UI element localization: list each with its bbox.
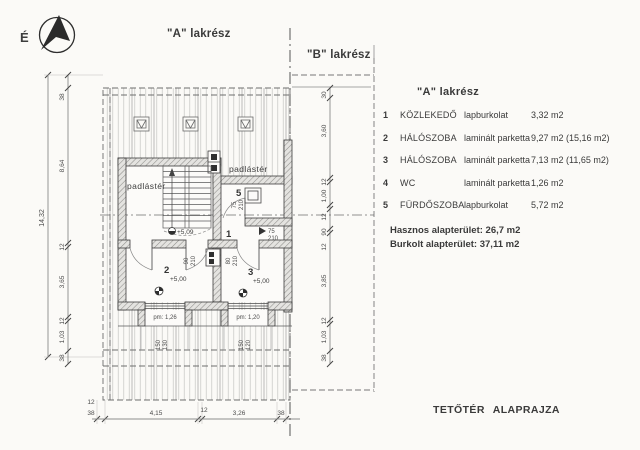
- parapet-right-label: pm: 1,20: [236, 315, 260, 321]
- blueprint-page: "A" lakrész "B" lakrész "A" lakrész 1 KÖ…: [0, 0, 640, 450]
- dim: 38: [321, 354, 328, 362]
- parapet-left-label: pm: 1,26: [153, 315, 177, 321]
- dim: 12: [87, 399, 95, 406]
- floor-plan-drawing: É: [0, 0, 640, 450]
- dim-right-chain: 30 3,60 12 1,00 12 90 12 3,85 12 1,03 38: [321, 85, 333, 367]
- dim: 12: [200, 407, 208, 414]
- dim: 12: [59, 243, 66, 251]
- level-stair: +5,09: [177, 229, 194, 236]
- dim: 1,03: [59, 330, 66, 343]
- dim: 8,64: [59, 159, 66, 172]
- door-room2-height: 210: [191, 255, 197, 266]
- dim: 12: [321, 317, 328, 325]
- door-room5-height: 210: [239, 199, 245, 210]
- dim-left-total: 14,32: [39, 72, 103, 360]
- door-room3-width: 80: [226, 257, 232, 264]
- room5-number: 5: [236, 188, 242, 199]
- dim: 38: [59, 93, 66, 101]
- dim-left-total-value: 14,32: [39, 209, 46, 227]
- door-room2-width: 90: [184, 257, 190, 264]
- dim: 12: [321, 243, 328, 251]
- dim: 12: [321, 213, 328, 221]
- window-right-height: 120: [246, 339, 252, 350]
- dim-bottom-chain: 12 38 4,15 12 3,26 38: [87, 399, 300, 424]
- door-hall-width: 75: [268, 229, 275, 235]
- dim: 4,15: [150, 410, 163, 417]
- dim: 1,00: [321, 189, 328, 202]
- attic-label-right: padlástér: [229, 164, 268, 174]
- dim: 12: [59, 317, 66, 325]
- dim: 3,85: [321, 274, 328, 287]
- dim: 38: [87, 410, 95, 417]
- room1-number: 1: [226, 229, 232, 240]
- room3-number: 3: [248, 267, 253, 278]
- attic-label-left: padlástér: [127, 181, 166, 191]
- dim: 38: [277, 410, 285, 417]
- dim: 3,26: [233, 410, 246, 417]
- dim-left-chain: 38 8,64 12 3,65 12 1,03 38: [59, 72, 71, 367]
- level-room3: +5,00: [253, 278, 270, 285]
- level-room2: +5,00: [170, 276, 187, 283]
- dim: 3,60: [321, 124, 328, 137]
- door-room3-height: 210: [233, 255, 239, 266]
- door-room5-width: 75: [232, 201, 238, 208]
- unit-b-outline: [292, 45, 374, 392]
- dim: 12: [321, 178, 328, 186]
- dim: 38: [59, 354, 66, 362]
- window-left-width: 150: [156, 339, 162, 350]
- window-right-width: 150: [239, 339, 245, 350]
- north-letter: É: [20, 30, 29, 45]
- room2-number: 2: [164, 265, 169, 276]
- north-arrow-icon: É: [20, 15, 75, 53]
- dim: 3,65: [59, 275, 66, 288]
- dim: 90: [321, 228, 328, 236]
- window-left-height: 130: [163, 339, 169, 350]
- dim: 30: [321, 91, 328, 99]
- dim: 1,03: [321, 330, 328, 343]
- door-hall-height: 210: [268, 236, 279, 242]
